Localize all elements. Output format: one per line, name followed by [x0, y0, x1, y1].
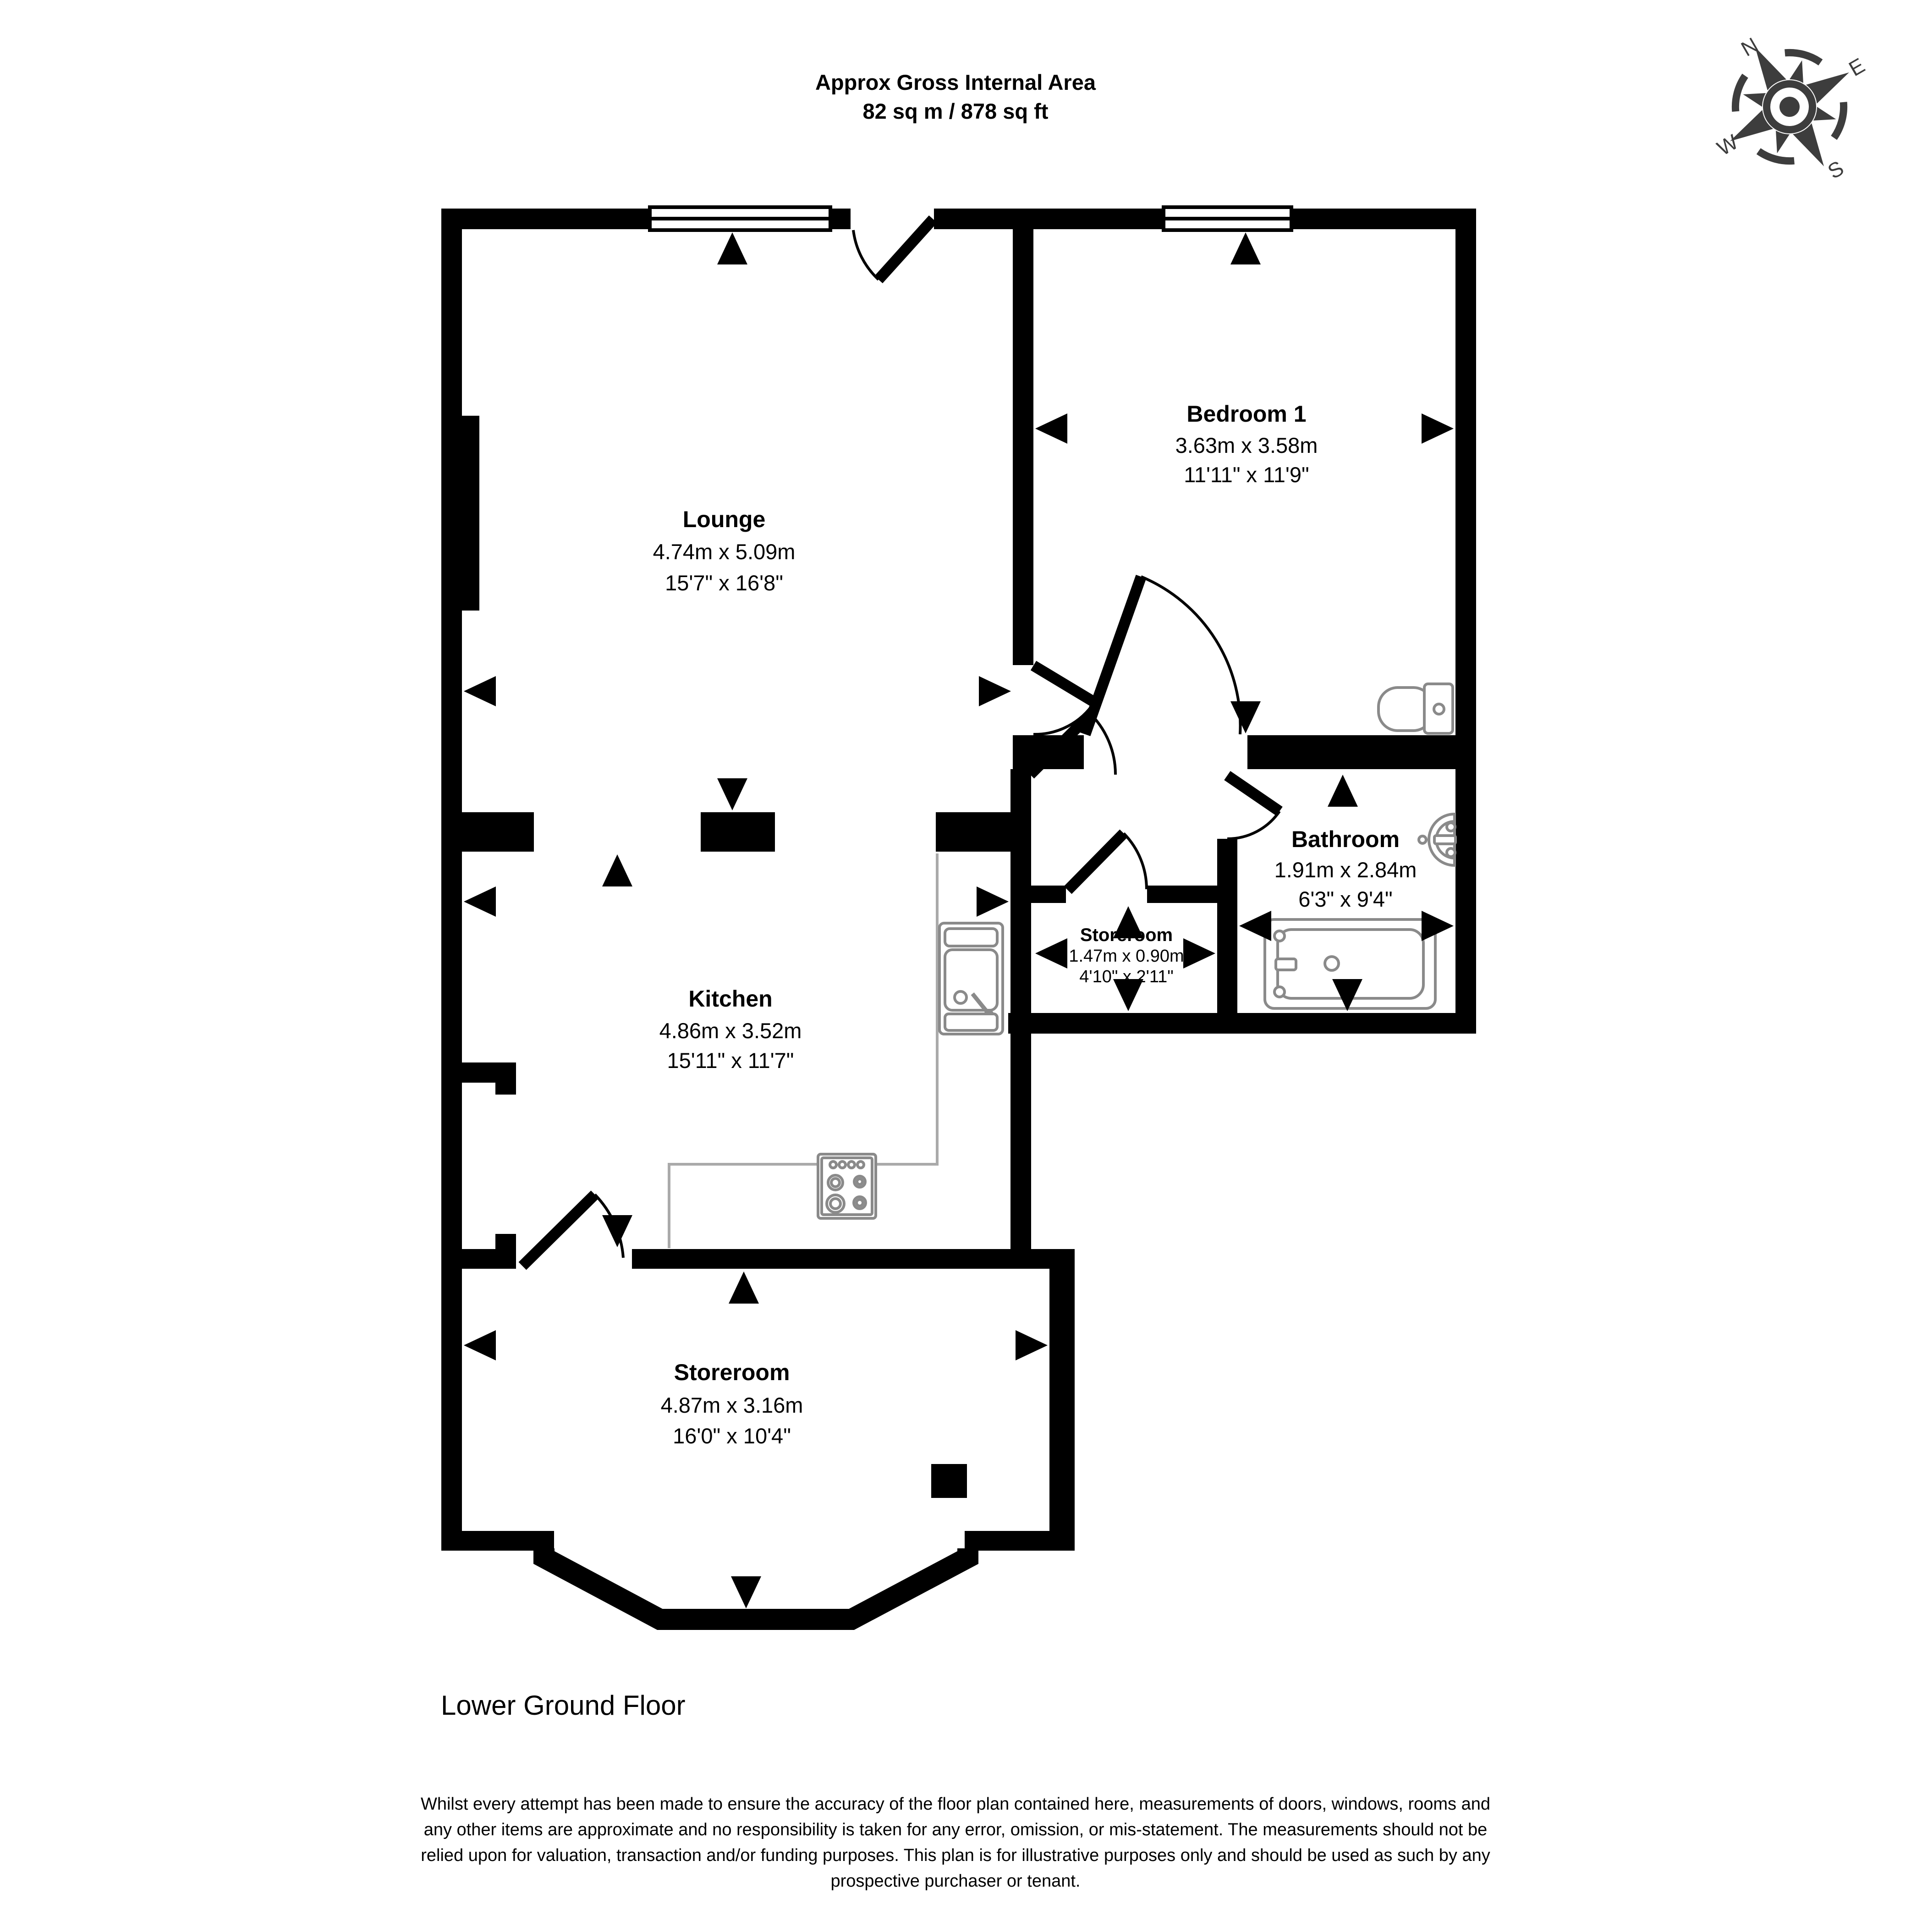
wall: [829, 209, 851, 229]
wall: [441, 1249, 516, 1269]
basin-fixture: [1419, 814, 1455, 865]
wall: [1455, 209, 1476, 1034]
room-name: Bathroom: [1291, 826, 1400, 852]
room-imperial: 4'10" x 2'11": [1079, 967, 1174, 986]
measure-arrow-down: [1230, 701, 1261, 733]
compass-east-label: E: [1845, 53, 1869, 81]
wall: [1217, 839, 1237, 1034]
door-leaf: [1085, 577, 1141, 734]
storeroom-label: Storeroom 4.87m x 3.16m 16'0" x 10'4": [661, 1360, 803, 1448]
wall: [936, 812, 1010, 852]
wall: [1008, 1013, 1476, 1034]
door-leaf: [1033, 666, 1094, 702]
door-arc: [853, 230, 879, 280]
compass-south-label: S: [1823, 156, 1848, 183]
doors: [522, 219, 1279, 1266]
compass-rose-icon: N E W S: [1696, 13, 1884, 201]
bathroom-label: Bathroom 1.91m x 2.84m 6'3" x 9'4": [1274, 826, 1417, 911]
disclaimer-text: Whilst every attempt has been made to en…: [0, 1791, 1911, 1894]
disclaimer-line-3: relied upon for valuation, transaction a…: [0, 1843, 1911, 1868]
disclaimer-line-1: Whilst every attempt has been made to en…: [0, 1791, 1911, 1817]
measure-arrow-left: [1035, 413, 1067, 444]
wall: [1049, 1249, 1075, 1531]
wall: [965, 1531, 1075, 1551]
room-name: Storeroom: [674, 1360, 790, 1385]
door-arc: [1227, 811, 1279, 839]
measure-arrow-right: [1422, 413, 1454, 444]
room-imperial: 15'7" x 16'8": [665, 571, 783, 595]
bedroom1-label: Bedroom 1 3.63m x 3.58m 11'11" x 11'9": [1175, 401, 1318, 487]
room-imperial: 11'11" x 11'9": [1184, 462, 1309, 487]
measure-arrow-up: [729, 1271, 759, 1304]
door-leaf: [522, 1194, 595, 1266]
room-metric: 4.74m x 5.09m: [653, 539, 796, 564]
wall: [632, 1249, 1075, 1269]
measure-arrow-up: [1230, 232, 1261, 264]
bedroom-window-icon: [1164, 207, 1291, 230]
measure-arrow-down: [602, 1215, 632, 1247]
measure-arrow-left: [1035, 938, 1067, 969]
wall: [1290, 209, 1476, 229]
room-metric: 1.91m x 2.84m: [1274, 858, 1417, 882]
disclaimer-line-2: any other items are approximate and no r…: [0, 1817, 1911, 1843]
measure-arrow-down: [717, 778, 747, 810]
room-imperial: 15'11" x 11'7": [667, 1048, 794, 1073]
floor-plan-drawing: Lounge 4.74m x 5.09m 15'7" x 16'8" Bedro…: [0, 0, 1911, 1932]
measure-arrow-up: [717, 232, 747, 264]
kitchen-label: Kitchen 4.86m x 3.52m 15'11" x 11'7": [659, 986, 802, 1073]
sink-fixture: [939, 923, 1003, 1034]
lounge-label: Lounge 4.74m x 5.09m 15'7" x 16'8": [653, 506, 796, 595]
room-imperial: 6'3" x 9'4": [1298, 887, 1393, 911]
door-arc: [1141, 577, 1241, 734]
measure-arrow-down: [731, 1576, 761, 1608]
wall: [441, 209, 651, 229]
wall-stub: [462, 1062, 516, 1083]
wall: [1247, 735, 1476, 769]
room-imperial: 16'0" x 10'4": [673, 1424, 791, 1448]
measure-arrow-right: [979, 676, 1011, 706]
wall-stub: [495, 1083, 516, 1095]
room-name: Lounge: [683, 506, 766, 532]
floorplan-page: Approx Gross Internal Area 82 sq m / 878…: [0, 0, 1911, 1932]
measure-arrow-left: [464, 676, 496, 706]
wall: [1013, 229, 1033, 665]
measure-arrow-right: [1183, 938, 1215, 969]
floor-name-label: Lower Ground Floor: [441, 1690, 686, 1721]
wall: [934, 209, 1164, 229]
measure-arrow-right: [1016, 1330, 1048, 1360]
room-metric: 4.87m x 3.16m: [661, 1393, 803, 1417]
wall: [441, 209, 462, 1536]
measure-arrow-left: [464, 886, 496, 917]
wall: [441, 1531, 554, 1551]
room-metric: 3.63m x 3.58m: [1175, 433, 1318, 457]
storeroom-small-label: Storeroom 1.47m x 0.90m 4'10" x 2'11": [1069, 925, 1184, 986]
room-name: Storeroom: [1080, 925, 1173, 945]
room-metric: 4.86m x 3.52m: [659, 1018, 802, 1043]
measure-arrow-left: [464, 1330, 496, 1360]
toilet-fixture: [1378, 684, 1453, 733]
measure-arrow-right: [1422, 911, 1454, 941]
room-name: Kitchen: [688, 986, 772, 1012]
lounge-window-icon: [650, 207, 830, 230]
wall-pillar: [459, 416, 479, 611]
wall: [1147, 886, 1217, 903]
room-metric: 1.47m x 0.90m: [1069, 947, 1184, 966]
wall-pier: [931, 1464, 967, 1498]
wall: [459, 812, 534, 852]
door-leaf: [1227, 776, 1279, 811]
measure-arrow-right: [977, 886, 1009, 917]
wall-stub: [495, 1234, 516, 1249]
door-leaf: [879, 219, 933, 280]
measure-arrow-up: [602, 854, 632, 886]
measure-arrow-up: [1328, 775, 1358, 807]
door-leaf: [1068, 833, 1124, 890]
wall: [1031, 886, 1066, 903]
wall: [701, 812, 775, 852]
measure-arrow-left: [1239, 911, 1271, 941]
hob-fixture: [818, 1154, 876, 1218]
room-name: Bedroom 1: [1186, 401, 1306, 427]
disclaimer-line-4: prospective purchaser or tenant.: [0, 1868, 1911, 1894]
door-arc: [1124, 833, 1147, 889]
